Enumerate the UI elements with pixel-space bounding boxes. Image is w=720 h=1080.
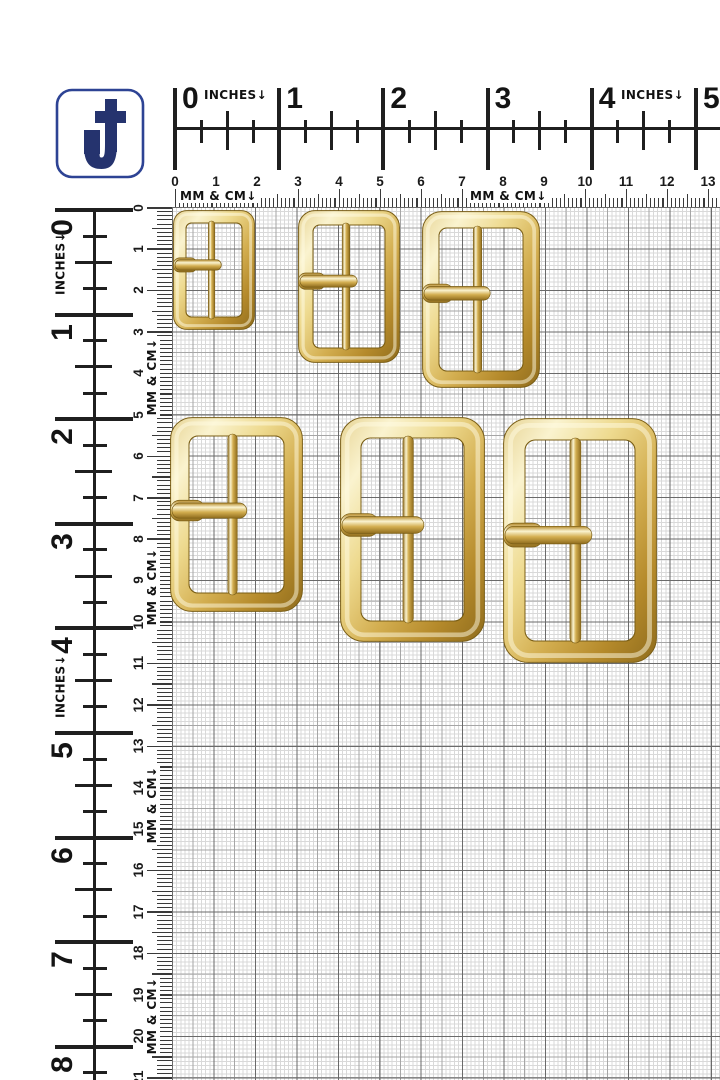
quarter-inch-tick [83,1019,107,1022]
mm-tick [580,198,581,207]
mm-tick [597,198,598,207]
quarter-inch-tick [83,862,107,865]
mm-tick [330,198,331,207]
mm-tick [157,857,172,858]
mm-tick [552,198,553,207]
mm-tick [716,198,717,207]
cm-number: 1 [201,175,231,189]
mm-tick [157,944,172,945]
mm-tick [679,198,680,207]
cm-number: 1 [131,231,147,267]
mm-tick [157,1073,172,1074]
half-inch-tick [75,888,112,891]
mm-tick [157,878,172,879]
mm-tick [289,198,290,207]
mm-tick [157,928,172,929]
mm-tick [457,198,458,207]
mm-tick [157,961,172,962]
mm-tick [380,189,381,207]
buckle-prong [175,260,221,270]
mm-tick [322,198,323,207]
half-inch-tick [75,784,112,787]
inch-number: 0 [182,84,198,114]
mm-tick [157,862,172,863]
cm-number: 0 [160,175,190,189]
quarter-inch-tick [83,915,107,918]
half-inch-tick [226,111,229,150]
half-inch-tick [75,261,112,264]
buckle-3-large [422,211,540,388]
mm-tick [157,903,172,904]
mm-tick [157,211,172,212]
half-inch-tick [330,111,333,150]
mm-tick [152,518,172,519]
mm-tick [466,198,467,207]
cm-number: 12 [652,175,682,189]
mm-tick [157,675,172,676]
mm-tick [157,899,172,900]
mm-tick [152,849,172,850]
mmcm-unit-label: MM & CM↓ [144,338,160,416]
mm-tick [147,497,172,499]
mm-tick [157,261,172,262]
mm-tick [585,189,586,207]
mm-tick [157,920,172,921]
mm-tick [157,244,172,245]
mm-tick [605,194,606,207]
quarter-inch-tick [356,120,359,143]
inches-unit-label: INCHES↓ [204,89,267,101]
buckle-1-small [173,210,255,330]
quarter-inch-tick [83,235,107,238]
inch-number: 2 [41,415,85,459]
mm-tick [157,882,172,883]
mm-tick [408,198,409,207]
mm-tick [157,940,172,941]
mm-tick [157,969,172,970]
mm-tick [152,228,172,229]
quarter-inch-tick [83,758,107,761]
mm-tick [157,853,172,854]
mm-tick [157,306,172,307]
mm-tick [654,198,655,207]
mm-tick [687,194,688,207]
mm-tick [157,1065,172,1066]
half-inch-tick [75,365,112,368]
mm-tick [157,302,172,303]
cm-number: 12 [131,687,147,723]
mm-tick [638,198,639,207]
mm-tick [147,704,172,706]
inch-tick [277,88,281,170]
quarter-inch-tick [668,120,671,143]
mm-tick [152,269,172,270]
mm-tick [147,456,172,458]
cm-number: 16 [131,852,147,888]
mm-tick [147,207,172,209]
mm-tick [314,198,315,207]
mm-tick [367,198,368,207]
mm-tick [147,538,172,540]
mm-tick [630,198,631,207]
mm-tick [306,198,307,207]
quarter-inch-tick [512,120,515,143]
mm-tick [576,198,577,207]
inch-number: 8 [41,1043,85,1080]
mm-tick [157,895,172,896]
mm-tick [613,198,614,207]
mm-tick [157,277,172,278]
mm-tick [157,886,172,887]
mm-tick [157,949,172,950]
inch-number: 7 [41,938,85,982]
mm-tick [147,331,172,333]
mm-tick [147,290,172,292]
mm-tick [157,319,172,320]
quarter-inch-tick [83,392,107,395]
mm-tick [273,198,274,207]
mm-tick [147,953,172,955]
inch-tick [694,88,698,170]
inch-tick [173,88,177,170]
mm-tick [157,236,172,237]
mm-tick [371,198,372,207]
mm-tick [147,870,172,872]
mm-tick [642,198,643,207]
mm-tick [556,198,557,207]
quarter-inch-tick [83,1071,107,1074]
half-inch-tick [75,575,112,578]
mm-tick [355,198,356,207]
mm-tick [298,189,299,207]
mm-tick [157,659,172,660]
cm-number: 10 [570,175,600,189]
inch-number: 2 [390,84,406,114]
inch-number: 4 [599,84,615,114]
mm-tick [152,891,172,892]
mm-tick [157,721,172,722]
mm-tick [703,198,704,207]
cm-number: 11 [131,645,147,681]
mm-tick [157,688,172,689]
mm-tick [157,323,172,324]
buckle-5-xxl [340,417,485,642]
mm-tick [152,932,172,933]
mm-tick [429,198,430,207]
mm-tick [384,198,385,207]
mm-tick [157,712,172,713]
inch-tick [590,88,594,170]
mm-tick [157,1060,172,1061]
mm-tick [416,198,417,207]
mm-tick [351,198,352,207]
mm-tick [609,198,610,207]
mm-tick [147,663,172,665]
cm-number: 5 [365,175,395,189]
quarter-inch-tick [564,120,567,143]
mm-tick [712,198,713,207]
mm-tick [152,683,172,684]
buckle-4-xl [170,417,303,612]
mm-tick [157,696,172,697]
mm-tick [675,198,676,207]
mm-tick [646,194,647,207]
cm-number: 4 [324,175,354,189]
scene: J 012345INCHES↓INCHES↓ 01234567891011121… [0,0,720,1080]
mm-tick [691,198,692,207]
quarter-inch-tick [83,653,107,656]
inches-unit-label: INCHES↓ [53,221,68,305]
mm-tick [662,198,663,207]
mm-tick [157,286,172,287]
mm-tick [157,294,172,295]
mm-tick [157,874,172,875]
mm-tick [568,198,569,207]
mm-tick [157,924,172,925]
mm-tick [277,194,278,207]
quarter-inch-tick [460,120,463,143]
inches-unit-label: INCHES↓ [53,644,68,728]
mm-tick [293,198,294,207]
mm-tick [157,335,172,336]
quarter-inch-tick [83,601,107,604]
mmcm-unit-label: MM & CM↓ [178,189,259,203]
mm-tick [671,198,672,207]
mm-tick [157,215,172,216]
mm-tick [302,198,303,207]
mm-tick [157,762,172,763]
mm-tick [157,915,172,916]
cm-number: 9 [529,175,559,189]
mm-tick [667,189,668,207]
quarter-inch-tick [83,705,107,708]
mm-tick [152,1056,172,1057]
mm-tick [634,198,635,207]
mm-tick [425,198,426,207]
half-inch-tick [75,470,112,473]
mm-tick [375,198,376,207]
quarter-inch-tick [83,444,107,447]
quarter-inch-tick [83,967,107,970]
half-inch-tick [75,993,112,996]
half-inch-tick [538,111,541,150]
cm-number: 8 [488,175,518,189]
mm-tick [157,866,172,867]
inches-unit-label: INCHES↓ [621,89,684,101]
mm-tick [157,224,172,225]
mm-tick [589,198,590,207]
mm-tick [285,198,286,207]
mm-tick [572,198,573,207]
mm-tick [261,198,262,207]
mm-tick [157,965,172,966]
mm-tick [269,198,270,207]
mm-tick [326,198,327,207]
mm-tick [441,194,442,207]
inch-number: 3 [495,84,511,114]
mm-tick [157,315,172,316]
cm-number: 7 [447,175,477,189]
mm-tick [404,198,405,207]
mm-tick [147,248,172,250]
mm-tick [152,725,172,726]
mm-tick [157,667,172,668]
quarter-inch-tick [408,120,411,143]
mm-tick [157,741,172,742]
mm-tick [157,733,172,734]
mm-tick [433,198,434,207]
mm-tick [157,679,172,680]
mm-tick [347,198,348,207]
mm-tick [157,282,172,283]
mm-tick [462,189,463,207]
mm-tick [157,253,172,254]
buckle-prong [505,526,592,544]
buckle-prong [172,503,247,518]
mm-tick [157,232,172,233]
mm-tick [157,737,172,738]
mm-tick [157,1069,172,1070]
mm-tick [157,650,172,651]
cm-number: 3 [283,175,313,189]
quarter-inch-tick [252,120,255,143]
mm-tick [658,198,659,207]
mm-tick [445,198,446,207]
mm-tick [157,758,172,759]
mm-tick [175,189,176,207]
mm-tick [152,311,172,312]
mm-tick [157,257,172,258]
cm-number: 7 [131,480,147,516]
mm-tick [412,198,413,207]
mm-tick [650,198,651,207]
mm-tick [617,198,618,207]
mm-tick [157,729,172,730]
brand-logo-icon [55,88,145,179]
mm-tick [564,194,565,207]
cm-number: 18 [131,935,147,971]
mm-tick [699,198,700,207]
mm-tick [147,746,172,748]
quarter-inch-tick [83,548,107,551]
inch-number: 5 [41,729,85,773]
mmcm-unit-label: MM & CM↓ [144,548,160,626]
quarter-inch-tick [83,496,107,499]
inch-number: 3 [41,520,85,564]
quarter-inch-tick [200,120,203,143]
inch-number: 5 [703,84,719,114]
inch-number: 1 [286,84,302,114]
mm-tick [157,638,172,639]
inch-tick [381,88,385,170]
mmcm-unit-label: MM & CM↓ [144,977,160,1055]
cm-number: 11 [611,175,641,189]
half-inch-tick [434,111,437,150]
mm-tick [621,198,622,207]
inch-number: 6 [41,834,85,878]
mm-tick [392,198,393,207]
mmcm-unit-label: MM & CM↓ [144,766,160,844]
mm-tick [708,189,709,207]
mm-tick [400,194,401,207]
mm-tick [593,198,594,207]
mm-tick [310,198,311,207]
cm-number: 6 [406,175,436,189]
mm-tick [157,240,172,241]
mm-tick [626,189,627,207]
mm-tick [157,708,172,709]
mm-tick [157,298,172,299]
mm-tick [281,198,282,207]
buckle-prong [424,287,490,301]
mm-tick [343,198,344,207]
mm-tick [157,936,172,937]
mm-tick [265,198,266,207]
cm-number: 2 [131,272,147,308]
mm-tick [157,265,172,266]
mm-tick [157,219,172,220]
brand-logo: J [55,88,145,179]
mm-tick [396,198,397,207]
cm-number: 6 [131,438,147,474]
mm-tick [157,630,172,631]
quarter-inch-tick [83,810,107,813]
inch-number: 1 [41,311,85,355]
mm-tick [152,973,172,974]
mm-tick [157,327,172,328]
mm-tick [157,907,172,908]
mm-tick [363,198,364,207]
mm-tick [339,189,340,207]
mm-tick [157,646,172,647]
half-inch-tick [642,111,645,150]
mm-tick [449,198,450,207]
mm-tick [152,476,172,477]
cm-number: 13 [693,175,720,189]
mmcm-unit-label: MM & CM↓ [468,189,549,203]
cm-number: 13 [131,728,147,764]
cm-number: 21 [131,1060,147,1080]
mm-tick [152,642,172,643]
mm-tick [437,198,438,207]
mm-tick [695,198,696,207]
mm-tick [157,717,172,718]
mm-tick [334,198,335,207]
buckle-6-xxxl [503,418,657,663]
mm-tick [560,198,561,207]
mm-tick [157,845,172,846]
mm-tick [453,198,454,207]
quarter-inch-tick [83,339,107,342]
cm-number: 0 [131,190,147,226]
mm-tick [157,957,172,958]
mm-tick [157,273,172,274]
mm-tick [157,700,172,701]
mm-tick [157,754,172,755]
quarter-inch-tick [304,120,307,143]
buckle-2-medium [298,210,400,363]
mm-tick [157,692,172,693]
half-inch-tick [75,679,112,682]
cm-number: 17 [131,894,147,930]
quarter-inch-tick [83,287,107,290]
mm-tick [157,671,172,672]
mm-tick [421,189,422,207]
buckle-prong [300,275,357,287]
mm-tick [152,435,172,436]
mm-tick [318,194,319,207]
buckle-prong [342,517,424,534]
